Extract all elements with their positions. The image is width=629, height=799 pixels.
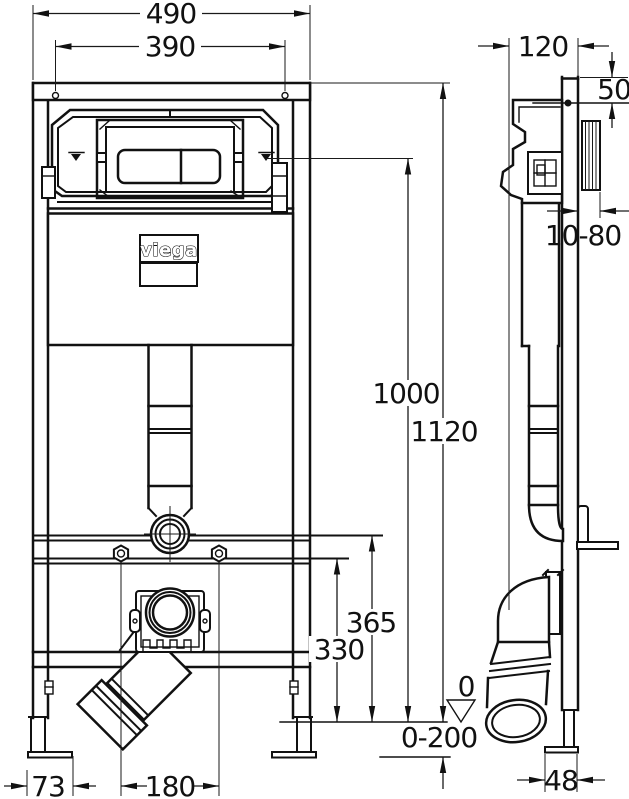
brand-logo: viega	[140, 240, 198, 261]
wall-bracket-arm	[577, 542, 618, 549]
dim-73-label: 73	[31, 770, 65, 799]
inspection-box	[140, 263, 197, 286]
foot-plate-left	[28, 752, 72, 758]
bracket-ear-left	[130, 610, 140, 632]
fixing-bolt-left	[114, 546, 128, 562]
dim-330-label: 330	[314, 633, 364, 666]
dim-10-80-label: 10-80	[545, 219, 621, 252]
wall-finish-hatch	[582, 121, 600, 190]
dim-490-label: 490	[146, 0, 196, 30]
dim-180-label: 180	[145, 770, 195, 799]
cistern-profile-side	[501, 100, 562, 203]
bracket-ear-right	[200, 610, 210, 632]
flush-bend-side	[529, 505, 563, 541]
wc-outlet-bracket	[130, 589, 210, 653]
dim-0-200-label: 0-200	[401, 721, 477, 754]
flush-pipe	[149, 345, 192, 516]
datum-symbol	[447, 700, 475, 722]
dim-390-label: 390	[145, 30, 195, 63]
top-rail	[33, 83, 310, 100]
flush-plate-opening	[42, 110, 293, 212]
side-view	[483, 77, 618, 753]
flush-plate	[118, 150, 220, 183]
dim-1000-label: 1000	[372, 377, 439, 410]
dim-0-label: 0	[458, 670, 475, 703]
water-level-mark-left	[69, 153, 84, 162]
dim-120-label: 120	[518, 30, 568, 63]
wall-bracket	[578, 506, 588, 544]
fixing-hole-left	[53, 93, 59, 99]
drain-elbow-side	[483, 570, 563, 746]
fixing-bolt-right	[212, 546, 226, 562]
dim-48-label: 48	[544, 764, 578, 797]
dim-50-label: 50	[597, 73, 629, 106]
fixing-hole-right	[282, 93, 288, 99]
dim-1120-label: 1120	[410, 415, 477, 448]
foot-plate-side	[545, 747, 578, 753]
installation-frame-technical-drawing: viega	[0, 0, 629, 799]
foot-plate-right	[272, 752, 316, 758]
flush-elbow	[144, 506, 196, 562]
drawing-sheet: viega	[0, 0, 629, 799]
